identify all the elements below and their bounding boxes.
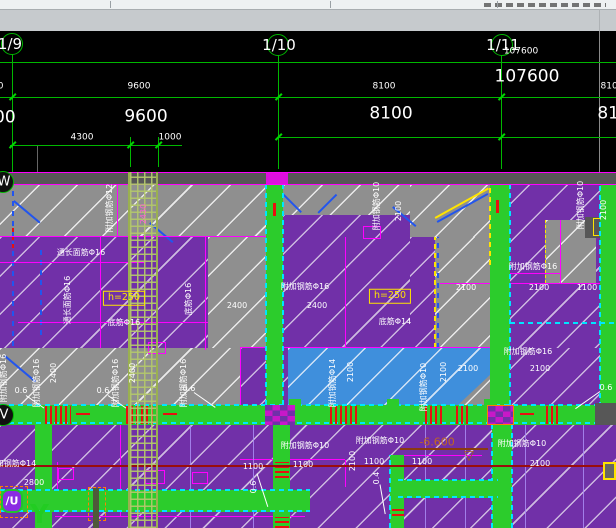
rebar-ticks — [456, 406, 468, 424]
lap-mark — [58, 468, 74, 480]
dimension-label: 107600 — [495, 69, 560, 86]
wall-edge-cyan — [282, 185, 284, 405]
rebar-ticks — [546, 406, 558, 424]
dimension-label: 9600 — [128, 83, 151, 92]
dimension-label: 8100 — [369, 106, 412, 123]
rebar-ticks — [392, 507, 404, 516]
wall-edge-cyan — [599, 185, 601, 425]
toolbar-strip — [0, 0, 616, 10]
boundary-yellow — [434, 237, 436, 348]
slab-edge — [560, 220, 561, 283]
slab-edge — [205, 237, 206, 350]
construction-line — [465, 425, 466, 528]
rebar-ticks — [275, 517, 289, 528]
beam-edge-cyan — [491, 425, 493, 528]
reference-line — [0, 465, 616, 467]
slab-edge — [100, 237, 101, 348]
rebar-ticks — [425, 406, 443, 424]
slab-region-purple — [283, 215, 410, 348]
slab-edge — [117, 185, 118, 237]
beam-edge-cyan — [0, 422, 616, 424]
slab-region-gray — [208, 237, 266, 348]
construction-line — [525, 425, 526, 528]
wall-edge-yellow — [489, 185, 491, 265]
brace-symbol: Y — [30, 500, 56, 528]
rebar-dash — [520, 413, 534, 415]
slab-region-gray — [0, 348, 240, 405]
shaft-mesh-strip — [128, 172, 158, 528]
wall-patch — [595, 403, 616, 425]
boundary-blue — [437, 237, 439, 348]
selection-box-yellow[interactable] — [603, 462, 616, 480]
construction-line — [253, 425, 254, 528]
column-checker — [265, 405, 295, 425]
slab-region-blue — [288, 348, 490, 405]
dimension-label: 1000 — [159, 134, 182, 143]
grid-bubble-label: V — [0, 408, 8, 423]
toolbar-divider — [330, 1, 331, 8]
wall-cap — [266, 173, 288, 184]
lap-mark — [192, 472, 208, 484]
dimension-label: 8100 — [597, 106, 616, 123]
slab-edge — [505, 273, 560, 274]
rebar-dashed-red — [12, 228, 14, 248]
dimension-label: 9600 — [0, 110, 16, 127]
construction-line — [583, 425, 584, 528]
slab-edge — [345, 237, 346, 348]
slab-edge-cyan — [510, 322, 616, 324]
slab-region-gray — [435, 237, 490, 348]
slab-region-gray — [283, 185, 410, 215]
rebar-dash — [76, 413, 90, 415]
slab-edge — [240, 459, 345, 460]
wall-green — [490, 185, 510, 405]
cad-application-screenshot: 1/9 1/10 1/11 — [0, 0, 616, 528]
window-band — [0, 10, 616, 31]
slab-edge — [240, 348, 241, 405]
wall-segment — [93, 488, 99, 528]
beam-edge-cyan — [511, 425, 513, 528]
cad-annotation-layer: 9600960081008100107600960096001076008100… — [0, 31, 616, 172]
rebar-ticks — [45, 406, 71, 424]
dimension-label: 8100 — [373, 83, 396, 92]
toolbar-clipped-text — [484, 3, 606, 7]
dimension-label: 4300 — [71, 134, 94, 143]
rebar-dash — [163, 413, 177, 415]
rebar-dashed-line — [12, 188, 14, 346]
construction-line — [425, 425, 426, 528]
pane-divider — [599, 9, 600, 31]
dimension-label: 8100 — [601, 83, 616, 92]
toolbar-divider — [110, 1, 111, 8]
beam-edge-cyan — [398, 496, 498, 498]
dimension-label: 9600 — [124, 109, 167, 126]
beam-green — [492, 425, 512, 528]
grid-bubble-label: W — [0, 175, 10, 190]
construction-line — [190, 425, 191, 528]
rebar-tick — [496, 200, 499, 213]
wall-green — [266, 185, 283, 405]
slab-edge — [398, 455, 482, 456]
wall-edge-cyan — [265, 185, 267, 405]
beam-edge-cyan — [398, 479, 498, 481]
column-cap — [387, 399, 399, 406]
slab-region-purple — [410, 237, 435, 348]
dimension-label: 107600 — [504, 48, 538, 57]
dimension-label: 9600 — [0, 83, 3, 92]
grid-bubble-label: /U — [6, 495, 19, 508]
slab-edge — [440, 283, 616, 284]
beam-edge-cyan — [0, 404, 616, 406]
rebar-tick — [273, 203, 276, 216]
wall-edge-cyan — [509, 185, 511, 405]
wall-green — [600, 185, 616, 425]
wall-band — [0, 173, 616, 184]
slab-edge — [18, 322, 208, 323]
column-checker-selected[interactable] — [487, 405, 514, 425]
toolbar-divider — [497, 1, 498, 8]
rebar-ticks — [330, 406, 358, 424]
slab-region-purple — [0, 237, 208, 348]
slab-edge — [0, 262, 145, 263]
lap-mark — [363, 226, 381, 239]
elevation-underline — [400, 448, 488, 450]
